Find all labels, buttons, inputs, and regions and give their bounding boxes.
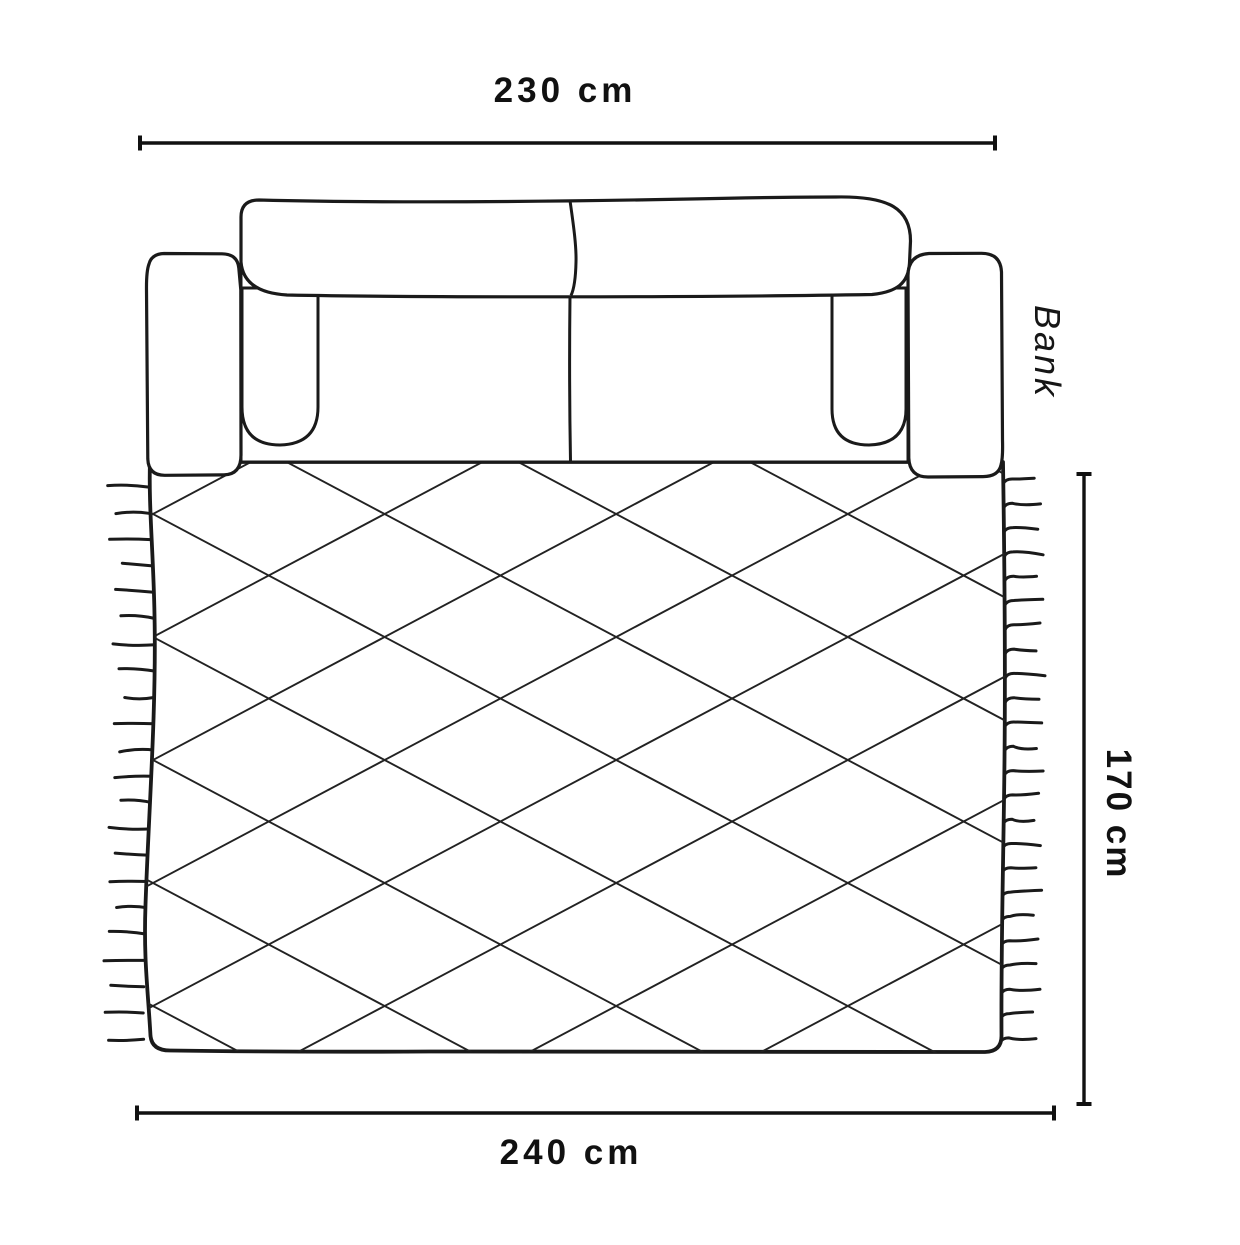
svg-text:240 cm: 240 cm [500, 1133, 643, 1172]
svg-text:230 cm: 230 cm [494, 71, 637, 110]
svg-text:170 cm: 170 cm [1099, 749, 1138, 880]
svg-text:Bank: Bank [1027, 305, 1068, 399]
